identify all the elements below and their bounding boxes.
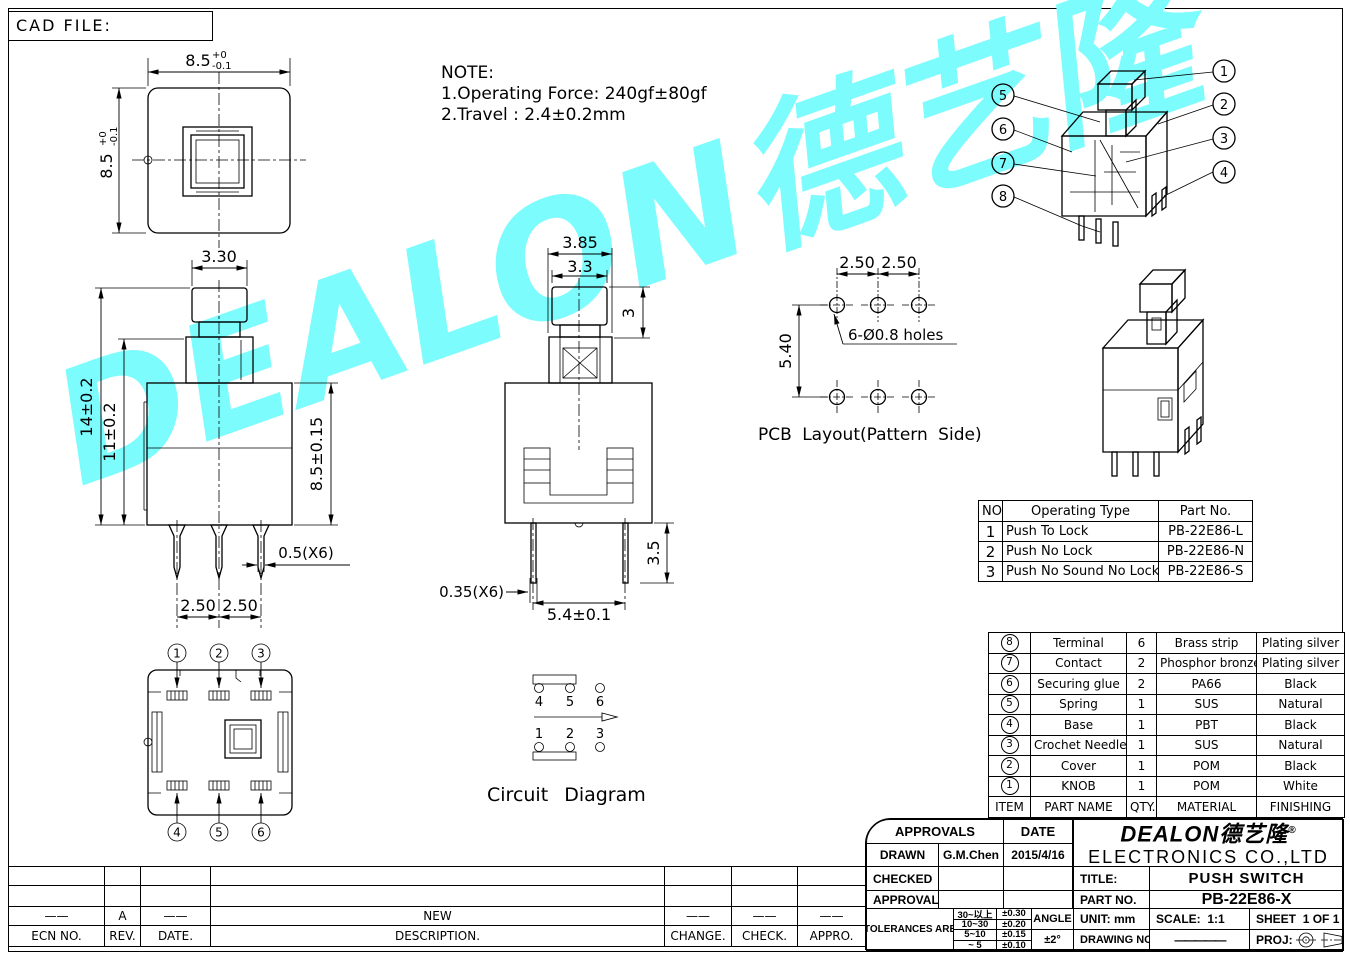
revision-row-empty: [9, 886, 866, 907]
bom-part-name: Cover: [1031, 756, 1127, 777]
company-name: ELECTRONICS CO.,LTD: [1088, 847, 1329, 867]
pcb-holes-label: 6-Ø0.8 holes: [848, 326, 943, 344]
bom-item-number: 2: [1001, 757, 1019, 775]
bom-table: 8 Terminal 6 Brass strip Plating silver …: [988, 632, 1345, 818]
callout-3: 3: [1220, 132, 1228, 147]
circuit-pin-6: 6: [596, 695, 604, 710]
first-angle-projection-icon: [1296, 930, 1343, 950]
bom-part-name: Securing glue: [1031, 674, 1127, 695]
checked-name: [938, 866, 1004, 891]
op-type: Push To Lock: [1003, 522, 1159, 542]
circuit-diagram: 4 5 6 1 2 3 Circuit Diagram: [487, 675, 646, 806]
callout-bottom-2: 2: [215, 647, 223, 661]
bom-item-number: 3: [1001, 736, 1019, 754]
bom-part-name: Terminal: [1031, 633, 1127, 654]
bom-qty: 1: [1127, 776, 1157, 797]
callout-5: 5: [999, 89, 1007, 104]
pcb-layout-caption: PCB Layout(Pattern Side): [758, 425, 982, 445]
bom-footer-qty: QTY.: [1127, 797, 1157, 818]
bom-item-number: 7: [1001, 654, 1019, 672]
title-value: PUSH SWITCH: [1149, 866, 1344, 891]
dim-topview-height: 8.5: [97, 153, 116, 178]
rev-header-description: DESCRIPTION.: [211, 926, 665, 947]
part-no-value: PB-22E86-X: [1149, 890, 1344, 909]
callout-4: 4: [1220, 166, 1228, 181]
callout-bottom-6: 6: [257, 826, 265, 840]
bom-finishing: Natural: [1257, 694, 1345, 715]
bom-finishing: Plating silver: [1257, 633, 1345, 654]
drawing-no-label: DRAWING NO.: [1073, 929, 1150, 951]
rev-header-change: CHANGE.: [665, 926, 732, 947]
table-row: 3 Crochet Needle 1 SUS Natural: [989, 735, 1345, 756]
tol-range-4: ~ 5: [953, 940, 997, 952]
bom-item-number: 4: [1001, 716, 1019, 734]
dim-topview-height-tol-minus: -0.1: [109, 126, 120, 146]
dim-front-body-height: 8.5±0.15: [307, 417, 326, 491]
bottom-pads: [167, 691, 271, 790]
table-row: 1 KNOB 1 POM White: [989, 776, 1345, 797]
bom-material: SUS: [1157, 735, 1257, 756]
op-type: Push No Sound No Lock: [1003, 562, 1159, 582]
company-logo-cell: DEALON德艺隆® ELECTRONICS CO.,LTD: [1073, 819, 1344, 867]
dim-pcb-pitch-2: 2.50: [881, 253, 917, 272]
bom-finishing: Black: [1257, 674, 1345, 695]
table-row: 2 Push No Lock PB-22E86-N: [979, 542, 1253, 562]
revision-row-empty: [9, 867, 866, 886]
isometric-view: [1103, 270, 1203, 476]
bom-qty: 6: [1127, 633, 1157, 654]
drawing-sheet: DEALON德艺隆 CAD FILE: NOTE: 1.Operating Fo…: [0, 0, 1350, 960]
bom-material: Phosphor bronze: [1157, 653, 1257, 674]
op-partno: PB-22E86-N: [1159, 542, 1253, 562]
rev-header-rev: REV.: [105, 926, 141, 947]
callout-7: 7: [999, 157, 1007, 172]
circuit-pin-1: 1: [535, 727, 543, 742]
bom-part-name: KNOB: [1031, 776, 1127, 797]
rev-ecn: ——: [9, 907, 105, 926]
bom-item-number: 8: [1001, 634, 1019, 652]
exploded-view: 5 6 7 8 1 2 3 4: [992, 60, 1235, 246]
dim-front-pin-pitch-2: 2.50: [222, 596, 258, 615]
op-col-partno: Part No.: [1159, 501, 1253, 522]
registered-mark: ®: [1288, 825, 1296, 836]
part-no-label: PART NO.: [1073, 890, 1150, 909]
bottom-view: 1 2 3 4 5 6: [144, 644, 292, 841]
bom-item-number: 6: [1001, 675, 1019, 693]
circuit-pin-4: 4: [535, 695, 543, 710]
bom-qty: 1: [1127, 756, 1157, 777]
rev-change: ——: [665, 907, 732, 926]
callout-6: 6: [999, 123, 1007, 138]
rev-header-appro: APPRO.: [798, 926, 866, 947]
approvals-label: APPROVALS: [866, 890, 939, 909]
pcb-layout-view: 2.50 2.50 5.40 6-Ø0.8 holes PCB Layout(P…: [758, 253, 982, 445]
bom-material: POM: [1157, 756, 1257, 777]
dim-front-knob-width: 3.30: [201, 247, 237, 266]
callout-8: 8: [999, 190, 1007, 205]
dim-pcb-pitch-1: 2.50: [839, 253, 875, 272]
scale-cell: SCALE: 1:1: [1149, 908, 1250, 930]
drawn-name: G.M.Chen: [938, 843, 1004, 867]
approvals-name: [938, 890, 1004, 909]
table-row: 2 Cover 1 POM Black: [989, 756, 1345, 777]
dim-side-pin-thickness: 0.35(X6): [439, 583, 504, 601]
bom-part-name: Base: [1031, 715, 1127, 736]
revision-row-new: —— A —— NEW —— —— ——: [9, 907, 866, 926]
checked-label: CHECKED: [866, 866, 939, 891]
callout-1: 1: [1220, 65, 1228, 80]
circuit-pin-5: 5: [566, 695, 574, 710]
top-view: 8.5 +0 -0.1 8.5 +0 -0.1: [97, 50, 306, 248]
dim-side-collar-width: 3.85: [562, 233, 598, 252]
tolerances-label: TOLERANCES ARE: [866, 908, 954, 951]
bom-material: POM: [1157, 776, 1257, 797]
callout-bottom-1: 1: [173, 647, 181, 661]
bom-qty: 2: [1127, 653, 1157, 674]
op-type: Push No Lock: [1003, 542, 1159, 562]
dim-front-pin-pitch-1: 2.50: [180, 596, 216, 615]
bom-footer-partname: PART NAME: [1031, 797, 1127, 818]
op-no: 3: [979, 562, 1003, 582]
callout-2: 2: [1220, 98, 1228, 113]
dim-front-total-height: 14±0.2: [77, 377, 96, 436]
op-partno: PB-22E86-S: [1159, 562, 1253, 582]
bom-footer-material: MATERIAL: [1157, 797, 1257, 818]
bom-material: Brass strip: [1157, 633, 1257, 654]
table-row: 8 Terminal 6 Brass strip Plating silver: [989, 633, 1345, 654]
rev-check: ——: [732, 907, 798, 926]
table-row: 3 Push No Sound No Lock PB-22E86-S: [979, 562, 1253, 582]
front-view: 3.30 14±0.2 11±0.2 8.5±0.15 0.5(X6) 2.50…: [77, 247, 350, 628]
cad-file-label: CAD FILE:: [8, 11, 213, 41]
bom-qty: 1: [1127, 735, 1157, 756]
circuit-diagram-caption: Circuit Diagram: [487, 784, 646, 806]
bom-finishing: Black: [1257, 715, 1345, 736]
op-partno: PB-22E86-L: [1159, 522, 1253, 542]
bom-item-number: 1: [1001, 777, 1019, 795]
dim-topview-width-tol-plus: +0: [212, 50, 227, 61]
bom-qty: 1: [1127, 715, 1157, 736]
dim-side-knob-height: 3: [619, 308, 638, 318]
bom-finishing: Natural: [1257, 735, 1345, 756]
dim-topview-height-tol-plus: +0: [98, 131, 109, 146]
bom-material: PBT: [1157, 715, 1257, 736]
projection-label: PROJ:: [1256, 933, 1293, 947]
angle-value: ±2°: [1031, 929, 1074, 951]
op-col-type: Operating Type: [1003, 501, 1159, 522]
callout-bottom-4: 4: [173, 826, 181, 840]
op-col-no: NO.: [979, 501, 1003, 522]
tol-value-4: ±0.10: [996, 940, 1032, 952]
bom-qty: 2: [1127, 674, 1157, 695]
date-header: DATE: [1003, 819, 1073, 844]
table-row: 4 Base 1 PBT Black: [989, 715, 1345, 736]
projection-cell: PROJ:: [1249, 929, 1344, 951]
table-row: 5 Spring 1 SUS Natural: [989, 694, 1345, 715]
dim-side-pin-pitch: 5.4±0.1: [547, 605, 611, 624]
rev-date: ——: [141, 907, 211, 926]
bom-item-number: 5: [1001, 695, 1019, 713]
drawing-no-value: —————: [1149, 929, 1250, 951]
title-label: TITLE:: [1073, 866, 1150, 891]
table-row: 1 Push To Lock PB-22E86-L: [979, 522, 1253, 542]
company-logo: DEALON德艺隆®: [1120, 819, 1296, 846]
bom-finishing: Black: [1257, 756, 1345, 777]
callout-bottom-5: 5: [215, 826, 223, 840]
dim-topview-width: 8.5: [185, 51, 210, 70]
dim-pcb-row-spacing: 5.40: [776, 333, 795, 369]
circuit-pin-2: 2: [566, 727, 574, 742]
rev-rev: A: [105, 907, 141, 926]
rev-header-date: DATE.: [141, 926, 211, 947]
dim-front-pin-width: 0.5(X6): [278, 544, 333, 562]
dim-side-pin-length: 3.5: [644, 540, 663, 565]
bom-part-name: Contact: [1031, 653, 1127, 674]
approvals-date: [1003, 890, 1073, 909]
callout-bottom-3: 3: [257, 647, 265, 661]
title-block: APPROVALS DATE DRAWN G.M.Chen 2015/4/16 …: [865, 818, 1343, 950]
bom-finishing: White: [1257, 776, 1345, 797]
rev-header-check: CHECK.: [732, 926, 798, 947]
dim-front-mid-height: 11±0.2: [100, 402, 119, 461]
bom-material: SUS: [1157, 694, 1257, 715]
drawn-date: 2015/4/16: [1003, 843, 1073, 867]
side-view: 3.85 3.3 3 0.35(X6) 5.4±0.1 3.5: [439, 233, 674, 624]
bom-footer-item: ITEM: [989, 797, 1031, 818]
rev-appro: ——: [798, 907, 866, 926]
op-no: 2: [979, 542, 1003, 562]
sheet-cell: SHEET 1 OF 1: [1249, 908, 1344, 930]
bom-footer-row: ITEM PART NAME QTY. MATERIAL FINISHING: [989, 797, 1345, 818]
operating-type-table: NO. Operating Type Part No. 1 Push To Lo…: [978, 500, 1253, 582]
bom-footer-finishing: FINISHING: [1257, 797, 1345, 818]
bom-part-name: Crochet Needle: [1031, 735, 1127, 756]
table-row: 7 Contact 2 Phosphor bronze Plating silv…: [989, 653, 1345, 674]
bom-part-name: Spring: [1031, 694, 1127, 715]
drawn-label: DRAWN: [866, 843, 939, 867]
checked-date: [1003, 866, 1073, 891]
circuit-pin-3: 3: [596, 727, 604, 742]
bom-material: PA66: [1157, 674, 1257, 695]
angle-label: ANGLE: [1031, 908, 1074, 930]
rev-header-ecn: ECN NO.: [9, 926, 105, 947]
unit-cell: UNIT: mm: [1073, 908, 1150, 930]
revision-table: —— A —— NEW —— —— —— ECN NO. REV. DATE. …: [8, 866, 866, 947]
dim-side-knob-width: 3.3: [567, 257, 592, 276]
bom-qty: 1: [1127, 694, 1157, 715]
dim-topview-width-tol-minus: -0.1: [212, 61, 232, 72]
revision-header-row: ECN NO. REV. DATE. DESCRIPTION. CHANGE. …: [9, 926, 866, 947]
op-no: 1: [979, 522, 1003, 542]
table-row: 6 Securing glue 2 PA66 Black: [989, 674, 1345, 695]
rev-description: NEW: [211, 907, 665, 926]
bom-finishing: Plating silver: [1257, 653, 1345, 674]
approvals-header: APPROVALS: [866, 819, 1004, 844]
